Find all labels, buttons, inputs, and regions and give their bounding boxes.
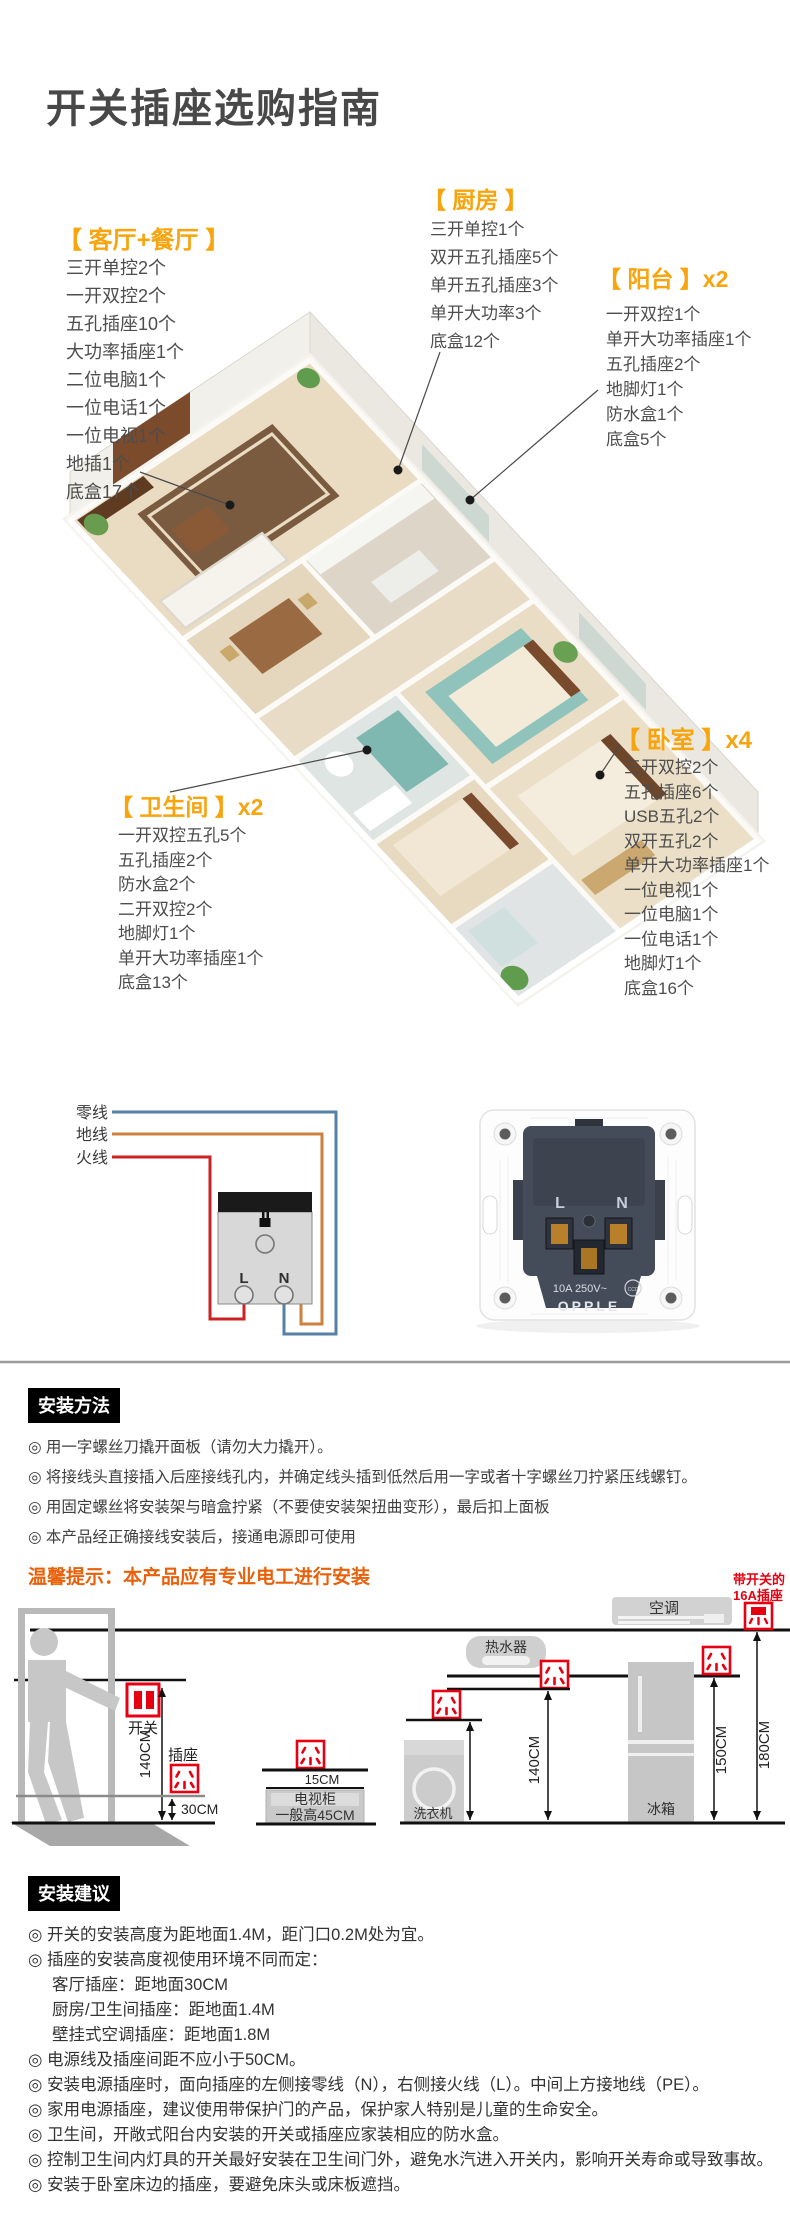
brass-terminal-l (551, 1224, 568, 1244)
method-step: ◎ 将接线头直接插入后座接线孔内，并确定线头插到低然后用一字或者十字螺丝刀拧紧压… (28, 1469, 776, 1486)
tv-height-label: 一般高45CM (275, 1807, 354, 1823)
list-item: 一开双控五孔5个 (118, 824, 263, 849)
infographic-page: 零线 地线 火线 L N (0, 0, 790, 2239)
list-item: 三开单控1个 (430, 216, 558, 244)
module-l-label: L (555, 1195, 565, 1212)
height-30: 30CM (181, 1801, 218, 1817)
method-step: ◎ 用一字螺丝刀撬开面板（请勿大力撬开）。 (28, 1439, 776, 1456)
ac-label: 空调 (649, 1600, 679, 1617)
advice-item: ◎ 家用电源插座，建议使用带保护门的产品，保护家人特别是儿童的生命安全。 (28, 2102, 776, 2119)
ccc-mark: CCC (628, 1287, 639, 1293)
list-item: 五孔插座2个 (606, 352, 751, 377)
list-item: 五孔插座10个 (66, 310, 184, 338)
brass-terminal-ground (581, 1248, 597, 1269)
module-n-label: N (616, 1195, 628, 1212)
living-room-label: 【 客厅+餐厅 】 (58, 220, 229, 255)
rating-text: 10A 250V~ (553, 1283, 607, 1295)
page-title: 开关插座选购指南 (46, 76, 382, 134)
advice-item: ◎ 电源线及插座间距不应小于50CM。 (28, 2052, 776, 2069)
living-room-list: 三开单控2个 一开双控2个 五孔插座10个 大功率插座1个 二位电脑1个 一位电… (66, 254, 184, 506)
advice-item: 厨房/卫生间插座：距地面1.4M (28, 2002, 776, 2019)
height-180: 180CM (756, 1721, 773, 1769)
terminal-n-label: N (279, 1270, 290, 1287)
person-figure (28, 1628, 120, 1824)
list-item: 双开五孔插座5个 (430, 244, 558, 272)
list-item: 单开大功率插座1个 (606, 327, 751, 352)
balcony-label: 【 阳台 】x2 (598, 260, 728, 294)
list-item: 底盒16个 (624, 977, 769, 1002)
advice-item: ◎ 插座的安装高度视使用环境不同而定： (28, 1952, 776, 1969)
brand-text: OPPLE (558, 1298, 620, 1314)
terminal-l-label: L (239, 1270, 248, 1287)
list-item: 单开大功率插座1个 (624, 854, 769, 879)
method-step: ◎ 本产品经正确接线安装后，接通电源即可使用 (28, 1529, 776, 1546)
list-item: 底盒12个 (430, 328, 558, 356)
neutral-wire-label: 零线 (76, 1104, 108, 1122)
list-item: 防水盒1个 (606, 402, 751, 427)
tv-15cm: 15CM (305, 1772, 340, 1787)
height-140-mid: 140CM (526, 1736, 543, 1784)
install-method-badge: 安装方法 (28, 1388, 120, 1423)
list-item: 单开大功率3个 (430, 300, 558, 328)
advice-item: 客厅插座：距地面30CM (28, 1977, 776, 1994)
height-diagram: 开关 140CM 插座 30CM 15CM 电视柜 一般高45CM 空调 (10, 1572, 790, 1846)
advice-item: ◎ 开关的安装高度为距地面1.4M，距门口0.2M处为宜。 (28, 1927, 776, 1944)
advice-item: 壁挂式空调插座：距地面1.8M (28, 2027, 776, 2044)
list-item: USB五孔2个 (624, 805, 769, 830)
tv-cabinet-label: 电视柜 (294, 1791, 336, 1807)
list-item: 底盒17个 (66, 478, 184, 506)
ground-wire-label: 地线 (76, 1126, 108, 1144)
bathroom-label: 【 卫生间 】x2 (110, 788, 263, 822)
socket-label: 插座 (168, 1747, 198, 1764)
advice-item: ◎ 卫生间，开敞式阳台内安装的开关或插座应家装相应的防水盒。 (28, 2127, 776, 2144)
switch-icon (127, 1684, 159, 1716)
side-slot (483, 1196, 497, 1234)
live-terminal (235, 1286, 253, 1304)
advice-item: ◎ 安装电源插座时，面向插座的左侧接零线（N），右侧接火线（L）。中间上方接地线… (28, 2077, 776, 2094)
bedroom-label: 【 卧室 】x4 (616, 720, 752, 755)
list-item: 地脚灯1个 (118, 922, 263, 947)
list-item: 防水盒2个 (118, 873, 263, 898)
terminal-block (218, 1192, 312, 1212)
list-item: 一位电话1个 (66, 394, 184, 422)
live-wire-label: 火线 (76, 1149, 108, 1167)
list-item: 二位电脑1个 (66, 366, 184, 394)
install-method-section: 安装方法 ◎ 用一字螺丝刀撬开面板（请勿大力撬开）。 ◎ 将接线头直接插入后座接… (28, 1388, 776, 1589)
side-slot (678, 1196, 692, 1234)
list-item: 五孔插座6个 (624, 781, 769, 806)
electrician-warning: 温馨提示：本产品应有专业电工进行安装 (28, 1562, 776, 1589)
list-item: 一位电话1个 (624, 928, 769, 953)
height-150: 150CM (713, 1726, 730, 1774)
list-item: 一位电视1个 (624, 879, 769, 904)
heater-label: 热水器 (485, 1639, 527, 1655)
list-item: 地脚灯1个 (624, 952, 769, 977)
kitchen-label: 【 厨房 】 (423, 181, 528, 215)
list-item: 一开双控1个 (606, 302, 751, 327)
list-item: 单开五孔插座3个 (430, 272, 558, 300)
list-item: 三开单控2个 (66, 254, 184, 282)
list-item: 地脚灯1个 (606, 377, 751, 402)
list-item: 底盒5个 (606, 427, 751, 452)
kitchen-list: 三开单控1个 双开五孔插座5个 单开五孔插座3个 单开大功率3个 底盒12个 (430, 216, 558, 356)
bathroom-list: 一开双控五孔5个 五孔插座2个 防水盒2个 二开双控2个 地脚灯1个 单开大功率… (118, 824, 263, 996)
height-140-left: 140CM (137, 1730, 154, 1778)
balcony-list: 一开双控1个 单开大功率插座1个 五孔插座2个 地脚灯1个 防水盒1个 底盒5个 (606, 302, 751, 452)
list-item: 三开双控2个 (624, 756, 769, 781)
advice-item: ◎ 控制卫生间内灯具的开关最好安装在卫生间门外，避免水汽进入开关内，影响开关寿命… (28, 2152, 776, 2169)
list-item: 单开大功率插座1个 (118, 947, 263, 972)
brass-terminal-n (610, 1224, 627, 1244)
fridge-label: 冰箱 (647, 1801, 675, 1817)
list-item: 一位电脑1个 (624, 903, 769, 928)
ground-terminal (256, 1235, 274, 1253)
list-item: 大功率插座1个 (66, 338, 184, 366)
list-item: 五孔插座2个 (118, 849, 263, 874)
product-socket-back: L N 10A 250V~ CCC OPPLE (476, 1110, 700, 1333)
neutral-terminal (275, 1286, 293, 1304)
list-item: 地插1个 (66, 450, 184, 478)
wiring-diagram: 零线 地线 火线 L N (76, 1104, 336, 1334)
install-advice-badge: 安装建议 (28, 1876, 120, 1911)
bedroom-list: 三开双控2个 五孔插座6个 USB五孔2个 双开五孔2个 单开大功率插座1个 一… (624, 756, 769, 1001)
list-item: 二开双控2个 (118, 898, 263, 923)
list-item: 双开五孔2个 (624, 830, 769, 855)
list-item: 一开双控2个 (66, 282, 184, 310)
module-screw (583, 1215, 595, 1227)
list-item: 底盒13个 (118, 971, 263, 996)
sw16-label-2: 16A插座 (733, 1588, 783, 1603)
advice-item: ◎ 安装于卧室床边的插座，要避免床头或床板遮挡。 (28, 2177, 776, 2194)
method-step: ◎ 用固定螺丝将安装架与暗盒拧紧（不要使安装架扭曲变形），最后扣上面板 (28, 1499, 776, 1516)
list-item: 一位电视1个 (66, 422, 184, 450)
ground-plug-icon (260, 1218, 271, 1227)
floor-shadow (10, 1822, 190, 1846)
install-advice-section: 安装建议 ◎ 开关的安装高度为距地面1.4M，距门口0.2M处为宜。 ◎ 插座的… (28, 1876, 776, 2202)
washer-label: 洗衣机 (413, 1806, 452, 1821)
